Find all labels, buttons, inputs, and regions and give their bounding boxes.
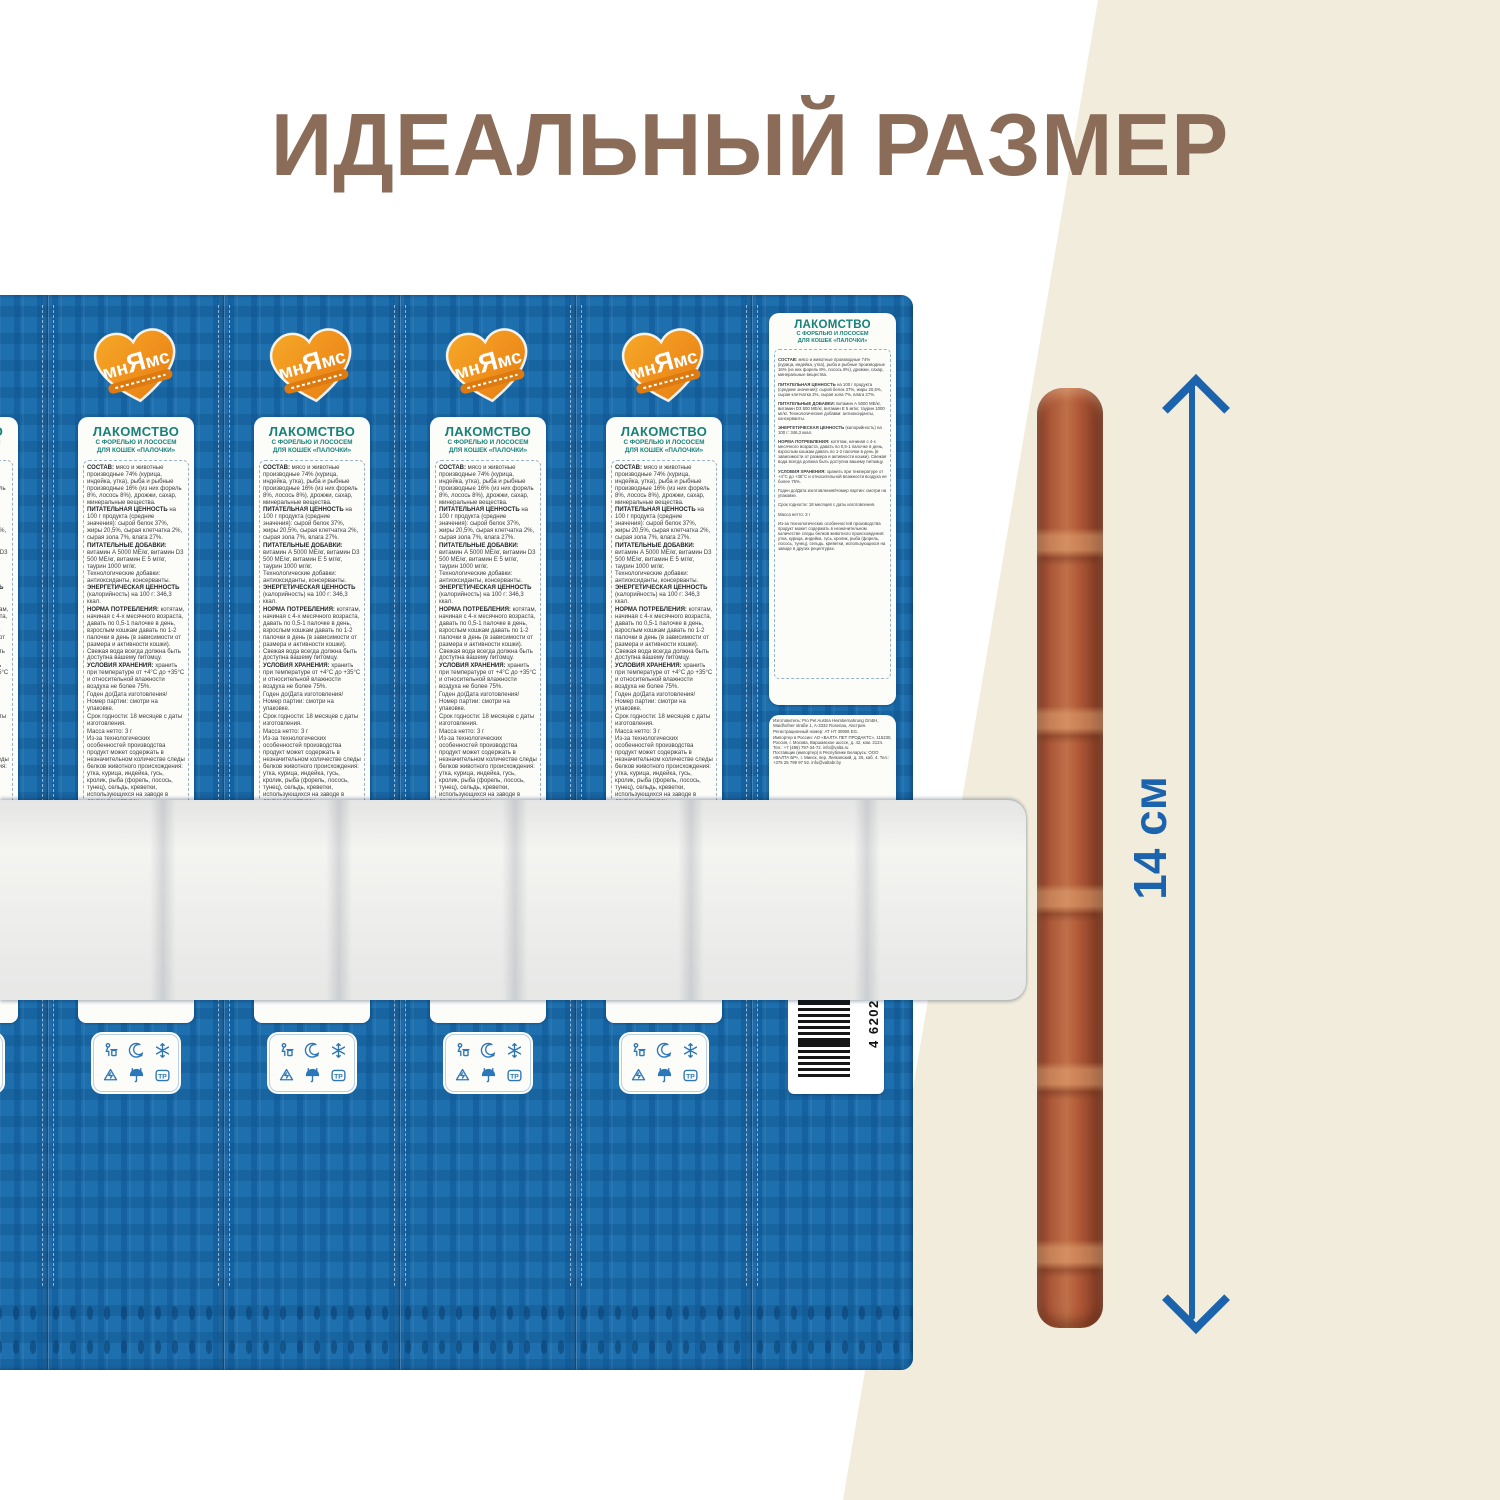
heart-shape xyxy=(0,327,4,406)
mnyams-heart-logo: мнЯмс xyxy=(433,315,543,415)
bottom-pattern-strip xyxy=(48,1297,224,1367)
tidy-man-icon xyxy=(454,1042,471,1059)
keep-dry-umbrella-icon xyxy=(128,1067,145,1084)
tidy-man-icon xyxy=(630,1042,647,1059)
label-subtitle-type: ДЛЯ КОШЕК «ПАЛОЧКИ» xyxy=(83,447,189,455)
label-title: ЛАКОМСТВО xyxy=(83,424,189,439)
svg-text:ТР: ТР xyxy=(158,1073,167,1080)
package-icons-box: ТР xyxy=(0,1034,3,1092)
crescent-moon-icon xyxy=(480,1042,497,1059)
foil-window-band xyxy=(0,800,1026,1000)
crescent-moon-icon xyxy=(128,1042,145,1059)
page-title: ИДЕАЛЬНЫЙ РАЗМЕР xyxy=(23,94,1478,196)
manufacturer-text: Изготовитель: Pro Pet Austria Heimtierna… xyxy=(773,719,892,805)
snowflake-icon xyxy=(506,1042,523,1059)
label-subtitle-flavor: С ФОРЕЛЬЮ И ЛОСОСЕМ xyxy=(435,439,541,447)
measurement-value: 14 см xyxy=(1124,763,1176,913)
label-subtitle-type: ДЛЯ КОШЕК «ПАЛОЧКИ» xyxy=(0,447,13,455)
measurement-arrow xyxy=(1189,382,1195,1320)
label-title: ЛАКОМСТВО xyxy=(0,424,13,439)
crescent-moon-icon xyxy=(304,1042,321,1059)
snowflake-icon xyxy=(154,1042,171,1059)
package-icons-box: ТР xyxy=(445,1034,531,1092)
bottom-pattern-strip xyxy=(0,1297,48,1367)
info-panel-main-label: ЛАКОМСТВО С ФОРЕЛЬЮ И ЛОСОСЕМ ДЛЯ КОШЕК … xyxy=(769,313,896,705)
label-title: ЛАКОМСТВО xyxy=(259,424,365,439)
label-subtitle-flavor: С ФОРЕЛЬЮ И ЛОСОСЕМ xyxy=(83,439,189,447)
bottom-pattern-strip xyxy=(752,1297,913,1367)
label-subtitle-flavor: С ФОРЕЛЬЮ И ЛОСОСЕМ xyxy=(774,331,891,338)
label-composition-text: СОСТАВ: мясо и животные производные 74% … xyxy=(774,349,891,679)
keep-dry-umbrella-icon xyxy=(656,1067,673,1084)
mnyams-heart-logo: мнЯмс xyxy=(609,315,719,415)
mnyams-heart-logo: мнЯмс xyxy=(81,315,191,415)
tidy-man-icon xyxy=(102,1042,119,1059)
label-subtitle-flavor: С ФОРЕЛЬЮ И ЛОСОСЕМ xyxy=(611,439,717,447)
label-subtitle-type: ДЛЯ КОШЕК «ПАЛОЧКИ» xyxy=(435,447,541,455)
tr-mark-icon: ТР xyxy=(154,1067,171,1084)
label-subtitle-type: ДЛЯ КОШЕК «ПАЛОЧКИ» xyxy=(774,338,891,345)
label-subtitle-type: ДЛЯ КОШЕК «ПАЛОЧКИ» xyxy=(259,447,365,455)
mnyams-heart-logo: мнЯмс xyxy=(257,315,367,415)
snowflake-icon xyxy=(330,1042,347,1059)
label-subtitle-flavor: С ФОРЕЛЬЮ И ЛОСОСЕМ xyxy=(259,439,365,447)
keep-dry-umbrella-icon xyxy=(304,1067,321,1084)
keep-dry-umbrella-icon xyxy=(480,1067,497,1084)
recycle-triangle-icon xyxy=(102,1067,119,1084)
crescent-moon-icon xyxy=(656,1042,673,1059)
treat-stick-photo xyxy=(1037,388,1103,1328)
product-card-ideal-size: ИДЕАЛЬНЫЙ РАЗМЕР мнЯмс ЛАКОМСТВО С ФОРЕЛ… xyxy=(0,0,1500,1500)
package-icons-box: ТР xyxy=(93,1034,179,1092)
package-icons-box: ТР xyxy=(269,1034,355,1092)
tidy-man-icon xyxy=(278,1042,295,1059)
tr-mark-icon: ТР xyxy=(330,1067,347,1084)
label-title: ЛАКОМСТВО xyxy=(435,424,541,439)
label-subtitle-flavor: С ФОРЕЛЬЮ И ЛОСОСЕМ xyxy=(0,439,13,447)
svg-text:ТР: ТР xyxy=(334,1073,343,1080)
recycle-triangle-icon xyxy=(454,1067,471,1084)
tr-mark-icon: ТР xyxy=(682,1067,699,1084)
bottom-pattern-strip xyxy=(224,1297,400,1367)
svg-text:ТР: ТР xyxy=(686,1073,695,1080)
recycle-triangle-icon xyxy=(630,1067,647,1084)
label-title: ЛАКОМСТВО xyxy=(611,424,717,439)
svg-text:ТР: ТР xyxy=(510,1073,519,1080)
recycle-triangle-icon xyxy=(278,1067,295,1084)
bottom-pattern-strip xyxy=(400,1297,576,1367)
label-subtitle-type: ДЛЯ КОШЕК «ПАЛОЧКИ» xyxy=(611,447,717,455)
package-icons-box: ТР xyxy=(621,1034,707,1092)
tr-mark-icon: ТР xyxy=(506,1067,523,1084)
label-title: ЛАКОМСТВО xyxy=(774,319,891,331)
bottom-pattern-strip xyxy=(576,1297,752,1367)
snowflake-icon xyxy=(682,1042,699,1059)
mnyams-heart-logo: мнЯмс xyxy=(0,315,15,415)
